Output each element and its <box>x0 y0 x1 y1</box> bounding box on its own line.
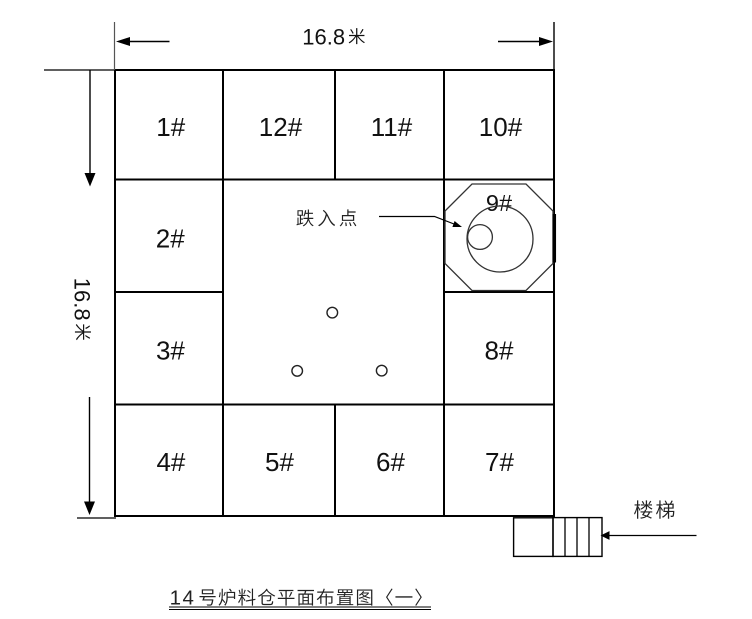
svg-text:2#: 2# <box>156 224 185 254</box>
svg-text:6#: 6# <box>376 447 405 477</box>
svg-text:10#: 10# <box>479 112 523 142</box>
svg-text:16.8: 16.8 <box>70 278 95 321</box>
svg-text:9#: 9# <box>486 190 512 216</box>
svg-text:16.8: 16.8 <box>302 24 345 49</box>
svg-text:5#: 5# <box>265 447 294 477</box>
svg-text:12#: 12# <box>259 112 303 142</box>
svg-text:11#: 11# <box>371 112 413 142</box>
svg-text:1#: 1# <box>156 112 185 142</box>
svg-text:14: 14 <box>170 586 196 609</box>
svg-text:7#: 7# <box>485 447 514 477</box>
svg-text:8#: 8# <box>485 336 514 366</box>
svg-text:4#: 4# <box>156 447 185 477</box>
svg-text:3#: 3# <box>156 336 185 366</box>
